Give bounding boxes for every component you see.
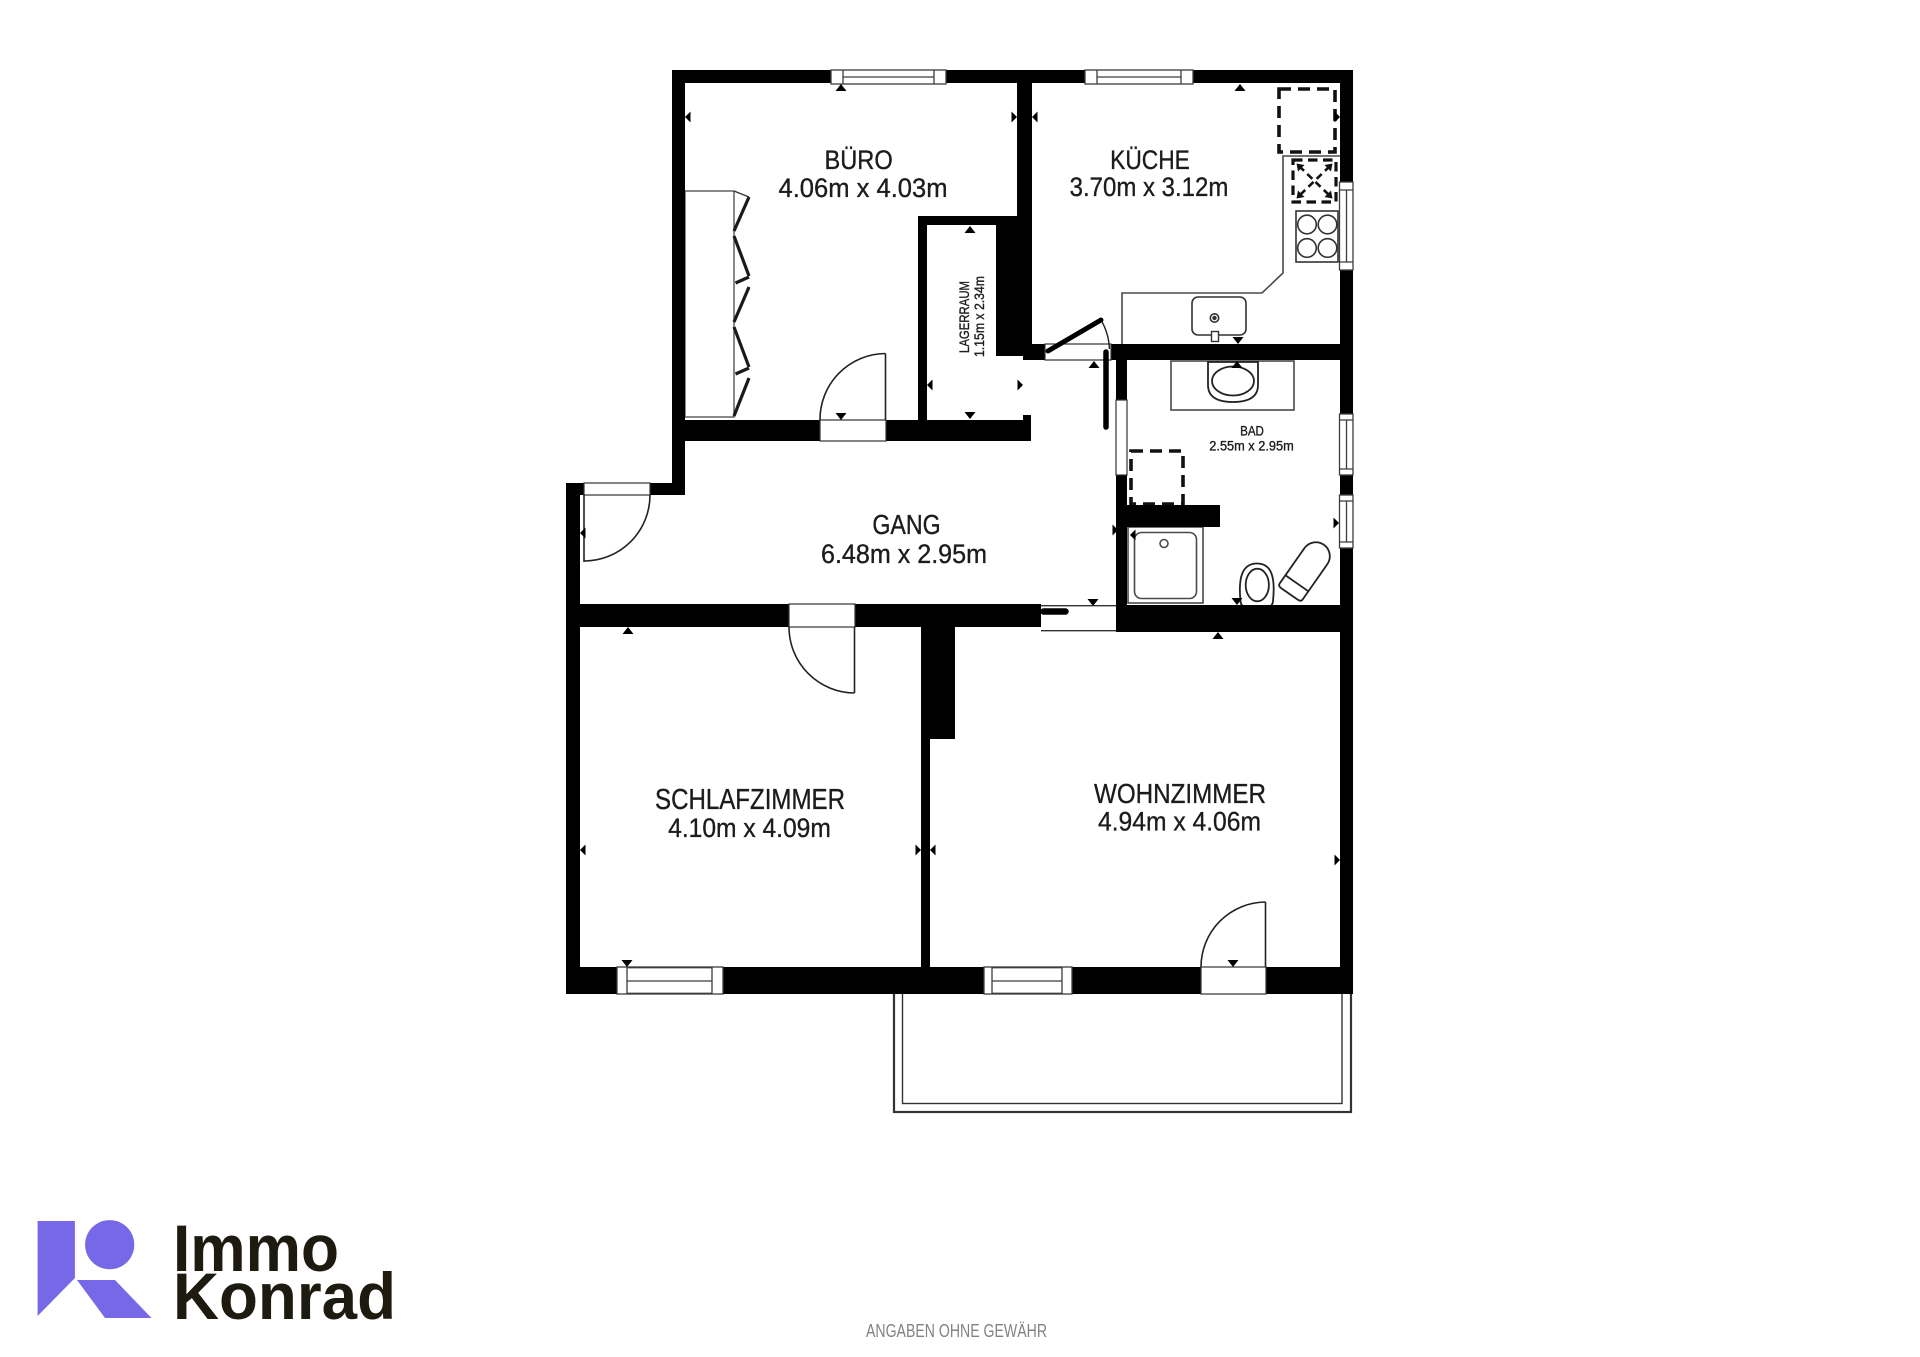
svg-text:GANG: GANG [872,509,940,540]
svg-text:2.55m x 2.95m: 2.55m x 2.95m [1209,439,1293,454]
svg-text:KÜCHE: KÜCHE [1110,145,1190,175]
svg-text:BÜRO: BÜRO [824,145,892,175]
svg-text:SCHLAFZIMMER: SCHLAFZIMMER [655,784,845,816]
svg-text:4.06m x 4.03m: 4.06m x 4.03m [779,173,948,203]
svg-text:6.48m x 2.95m: 6.48m x 2.95m [821,539,987,569]
svg-text:Konrad: Konrad [173,1259,396,1333]
svg-text:LAGERRAUM: LAGERRAUM [956,281,972,353]
svg-text:1.15m x 2.34m: 1.15m x 2.34m [972,276,987,357]
svg-text:3.70m x 3.12m: 3.70m x 3.12m [1070,172,1229,202]
svg-text:ANGABEN OHNE GEWÄHR: ANGABEN OHNE GEWÄHR [866,1321,1047,1341]
svg-text:4.10m x 4.09m: 4.10m x 4.09m [668,813,831,843]
svg-text:WOHNZIMMER: WOHNZIMMER [1094,778,1266,809]
svg-text:BAD: BAD [1240,424,1264,439]
svg-text:4.94m x 4.06m: 4.94m x 4.06m [1098,807,1261,837]
